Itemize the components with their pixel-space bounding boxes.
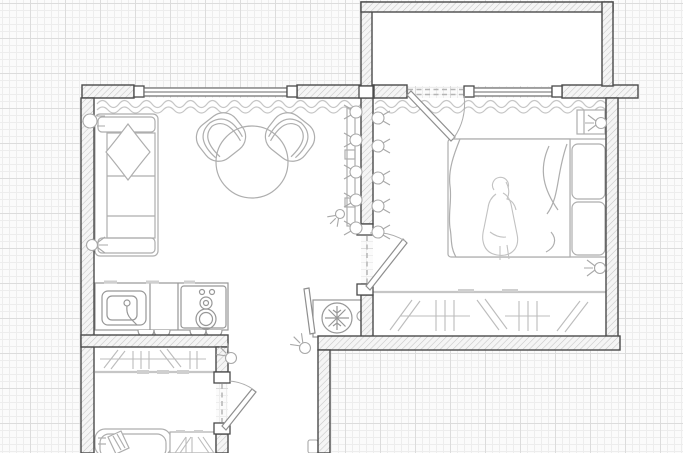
wall-segment[interactable] — [562, 85, 638, 98]
wall-segment-bath-lower[interactable] — [216, 434, 228, 453]
wall-segment-partition-upper[interactable] — [361, 98, 373, 224]
wall-junction — [359, 86, 373, 98]
floor-plan-drawing — [0, 0, 683, 453]
snowflake-icon — [325, 306, 349, 330]
double-bed[interactable] — [448, 139, 608, 257]
balcony-floor — [372, 12, 602, 86]
wall-segment-bedroom-bottom[interactable] — [318, 336, 620, 350]
bed-pillow-bottom — [572, 202, 605, 255]
wall-segment[interactable] — [374, 85, 407, 98]
wall-segment-hallway-right[interactable] — [318, 350, 330, 453]
wall-segment-partition-lower[interactable] — [361, 295, 373, 338]
wall-segment-right-exterior[interactable] — [606, 98, 618, 338]
wall-segment-living-bottom[interactable] — [81, 335, 228, 347]
floor-plan-canvas[interactable] — [0, 0, 683, 453]
window-balcony[interactable] — [464, 86, 562, 97]
bed-pillow-top — [572, 144, 605, 199]
wall-segment-left-exterior[interactable] — [81, 98, 94, 453]
wall-segment-balcony-top[interactable] — [361, 2, 613, 12]
laundry-closet[interactable] — [170, 430, 216, 453]
window-living-room[interactable] — [134, 86, 297, 97]
utility-pipe — [308, 440, 318, 453]
wall-segment-balcony-right[interactable] — [602, 2, 613, 86]
wall-segment-balcony-left[interactable] — [361, 2, 372, 86]
air-conditioner[interactable] — [313, 300, 367, 337]
wall-segment[interactable] — [82, 85, 134, 98]
bathtub[interactable] — [95, 429, 171, 453]
bed-blanket — [449, 139, 570, 257]
sofa[interactable] — [95, 114, 158, 256]
